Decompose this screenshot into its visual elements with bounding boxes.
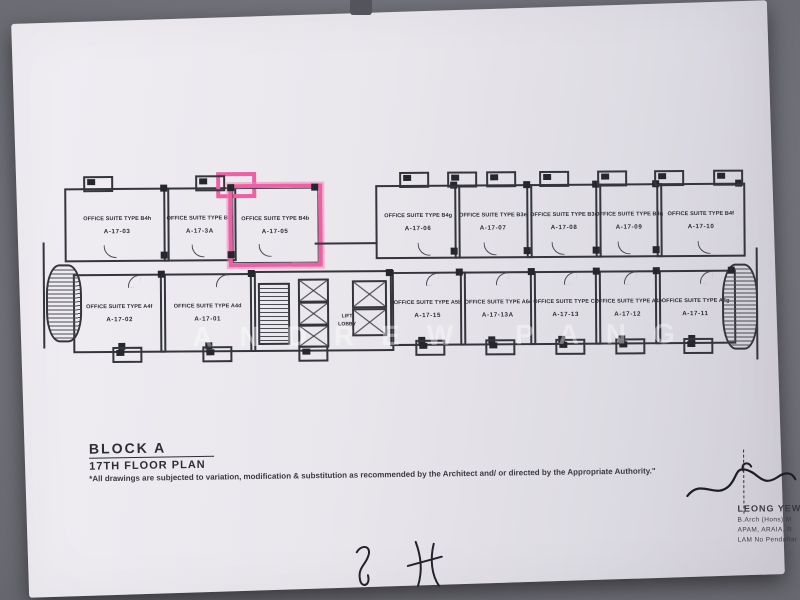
east-staircase — [722, 264, 759, 350]
unit-type-label: OFFICE SUITE TYPE A4e — [594, 298, 662, 304]
wall-column — [728, 267, 735, 274]
unit-number: A-17-05 — [262, 229, 289, 235]
handwritten-mark-y — [347, 540, 383, 594]
architect-details: LEONG YEW K B.Arch (Hons) M APAM, ARAIA,… — [737, 503, 800, 544]
unit-a-17-02: OFFICE SUITE TYPE A4f A-17-02 — [73, 274, 167, 354]
unit-type-label: OFFICE SUITE TYPE C2 — [533, 298, 598, 304]
west-end-wall — [43, 242, 46, 348]
ledge-column — [601, 174, 609, 180]
lift-shaft — [298, 324, 329, 347]
unit-type-label: OFFICE SUITE TYPE B4b — [241, 216, 309, 222]
unit-type-label: OFFICE SUITE TYPE A4g — [662, 297, 730, 303]
unit-type-label: OFFICE SUITE TYPE A5b — [394, 299, 462, 305]
balcony-ledge — [112, 347, 142, 363]
ledge-column — [403, 175, 411, 181]
architect-registration: LAM No Pendaftar — [738, 536, 800, 544]
unit-number: A-17-06 — [405, 225, 432, 231]
balcony-ledge — [597, 170, 627, 186]
unit-a-17-05-highlighted: OFFICE SUITE TYPE B4b A-17-05 — [228, 184, 323, 268]
architect-qualification: B.Arch (Hons) M — [738, 516, 800, 524]
balcony-ledge — [485, 339, 515, 355]
lift-shaft — [298, 301, 329, 325]
unit-type-label: OFFICE SUITE TYPE A4d — [174, 303, 242, 309]
ledge-column — [717, 173, 725, 179]
unit-a-17-03: OFFICE SUITE TYPE B4h A-17-03 — [64, 188, 170, 263]
balcony-ledge — [415, 340, 445, 356]
ledge-column — [619, 341, 627, 347]
wall-column — [653, 267, 660, 274]
core-staircase — [258, 283, 290, 345]
wall-column — [248, 270, 255, 277]
balcony-ledge — [555, 339, 585, 355]
ledge-column — [490, 174, 498, 180]
unit-type-label: OFFICE SUITE TYPE B3f — [167, 215, 234, 221]
balcony-ledge — [447, 171, 477, 187]
wall-column — [523, 181, 530, 188]
balcony-ledge — [399, 172, 429, 188]
ledge-column — [559, 342, 567, 348]
balcony-ledge — [654, 170, 684, 186]
wall-column — [160, 185, 167, 192]
unit-number: A-17-13A — [482, 312, 514, 318]
wall-column — [161, 252, 168, 259]
wall-column — [593, 268, 600, 275]
unit-type-label: OFFICE SUITE TYPE B3c — [530, 211, 598, 217]
ledge-column — [543, 174, 551, 180]
title-block: BLOCK A 17TH FLOOR PLAN — [89, 439, 215, 473]
wall-column — [386, 269, 393, 276]
lift-shaft — [298, 278, 329, 302]
unit-number: A-17-11 — [682, 310, 708, 316]
east-end-wall — [756, 248, 759, 360]
unit-type-label: OFFICE SUITE TYPE A4f — [86, 304, 152, 310]
unit-number: A-17-3A — [186, 228, 214, 234]
unit-type-label: OFFICE SUITE TYPE A6c — [464, 299, 532, 305]
unit-number: A-17-13 — [552, 311, 579, 317]
balcony-ledge — [539, 171, 569, 187]
balcony-ledge — [298, 346, 328, 362]
unit-number: A-17-03 — [104, 228, 131, 234]
balcony-ledge — [713, 170, 743, 186]
photo-of-floor-plan: ANDREW PANG OFFICE SUITE TYPE B4h A-17-0… — [0, 0, 800, 600]
unit-number: A-17-12 — [615, 311, 642, 317]
balcony-ledge — [202, 346, 232, 362]
unit-number: A-17-10 — [688, 223, 715, 229]
balcony-ledge — [486, 171, 516, 187]
ledge-column — [658, 173, 666, 179]
unit-type-label: OFFICE SUITE TYPE B4g — [384, 212, 452, 218]
wall-column — [524, 247, 531, 254]
corridor-edge-line — [315, 242, 378, 244]
ledge-column — [419, 343, 427, 349]
unit-number: A-17-08 — [551, 224, 578, 230]
unit-type-label: OFFICE SUITE TYPE B4f — [668, 210, 735, 216]
wall-column — [528, 268, 535, 275]
signature-squiggle — [685, 455, 797, 508]
ledge-column — [687, 341, 695, 347]
wall-column — [311, 184, 318, 191]
block-title: BLOCK A — [89, 439, 215, 459]
wall-column — [227, 184, 234, 191]
ledge-column — [116, 350, 124, 356]
unit-a-17-01: OFFICE SUITE TYPE A4d A-17-01 — [160, 273, 257, 353]
balcony-ledge — [683, 338, 713, 354]
lift-shaft — [352, 308, 387, 336]
wall-column — [228, 251, 235, 258]
unit-number: A-17-15 — [415, 312, 442, 318]
handwritten-mark-4 — [404, 536, 448, 594]
ledge-column — [199, 178, 207, 184]
unit-number: A-17-02 — [106, 317, 133, 323]
unit-number: A-17-07 — [480, 225, 507, 231]
wall-column — [456, 269, 463, 276]
architect-membership: APAM, ARAIA, R — [738, 526, 800, 534]
wall-column — [158, 271, 165, 278]
unit-type-label: OFFICE SUITE TYPE B3g — [595, 211, 663, 217]
unit-type-label: OFFICE SUITE TYPE B4h — [83, 215, 151, 221]
ledge-column — [87, 179, 95, 185]
balcony-ledge — [195, 175, 225, 191]
ledge-column — [206, 349, 214, 355]
unit-number: A-17-01 — [195, 316, 222, 322]
wall-column — [653, 246, 660, 253]
ledge-column — [302, 349, 310, 355]
ledge-column — [451, 175, 459, 181]
floor-title: 17TH FLOOR PLAN — [89, 459, 214, 473]
balcony-ledge — [615, 338, 645, 354]
unit-number: A-17-09 — [616, 224, 643, 230]
wall-column — [593, 247, 600, 254]
ledge-column — [489, 342, 497, 348]
architect-name: LEONG YEW K — [737, 503, 800, 514]
floor-plan-canvas: ANDREW PANG OFFICE SUITE TYPE B4h A-17-0… — [0, 0, 800, 600]
unit-type-label: OFFICE SUITE TYPE B3e — [460, 212, 528, 218]
west-staircase — [46, 264, 83, 342]
wall-column — [451, 248, 458, 255]
balcony-ledge — [83, 176, 113, 192]
lift-shaft — [352, 280, 387, 308]
